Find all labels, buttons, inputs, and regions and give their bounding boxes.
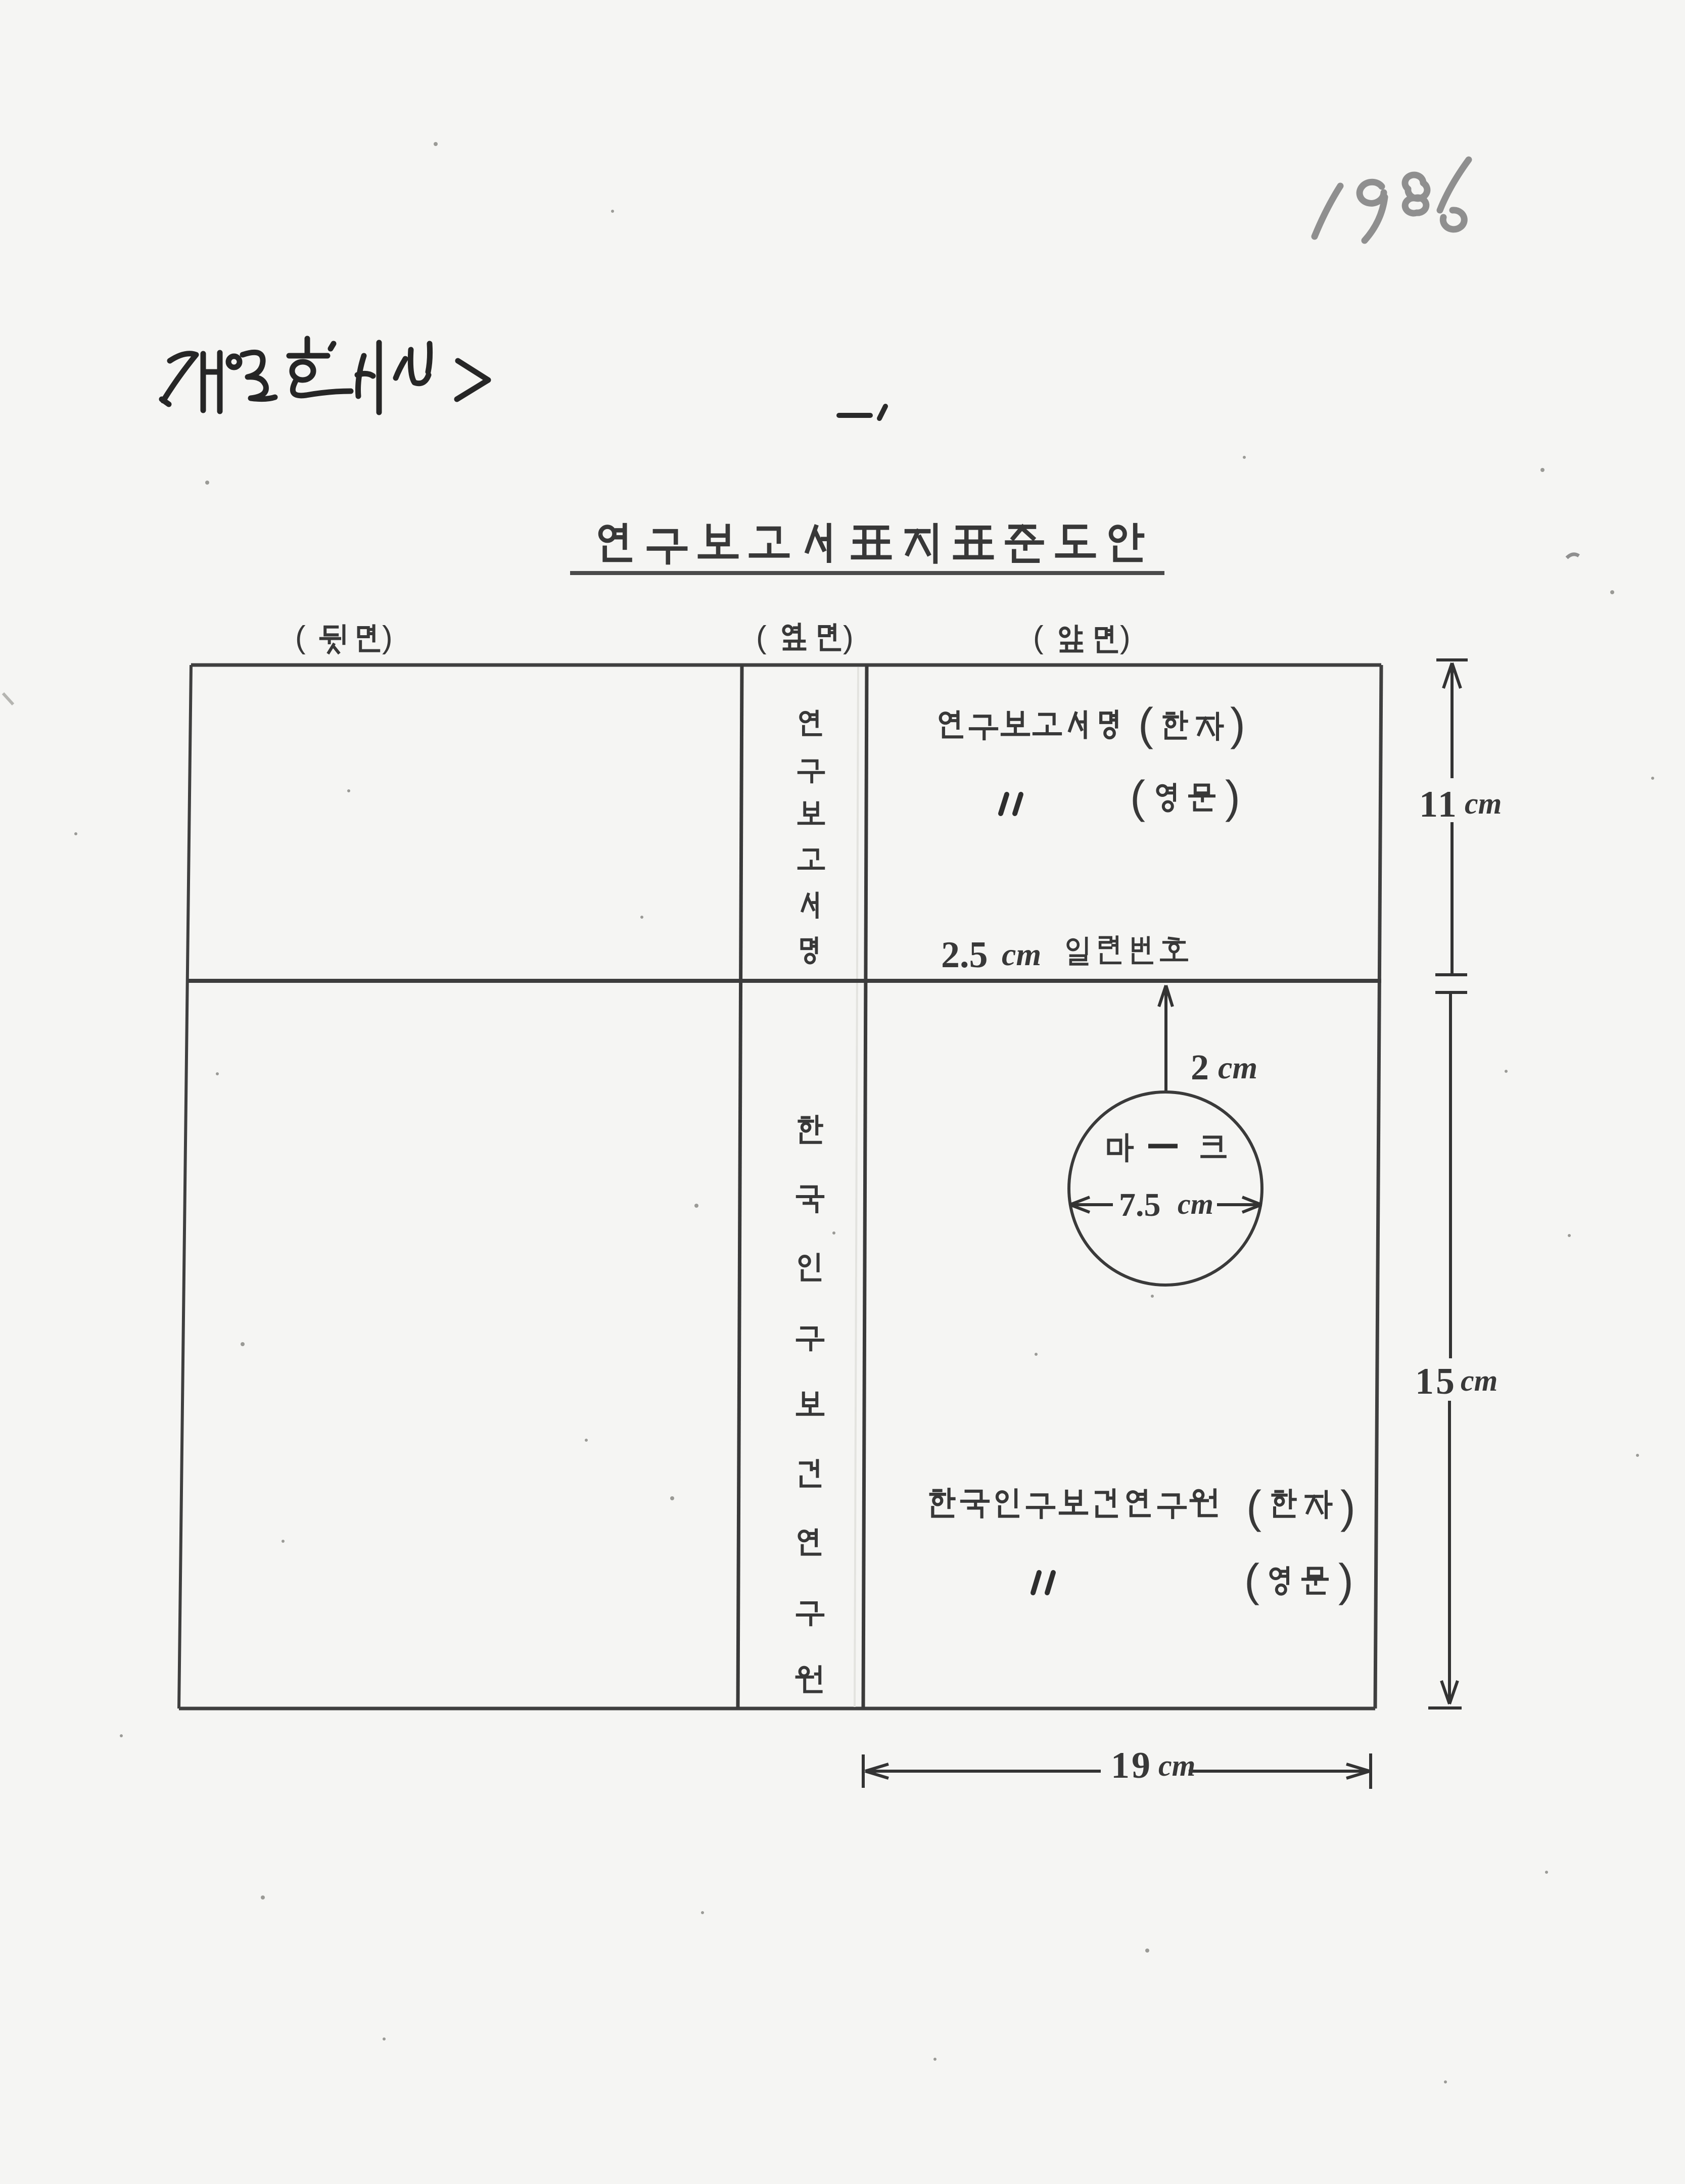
svg-text:11: 11 [1419,784,1459,825]
svg-text:(: ( [1244,1555,1259,1606]
svg-text:(: ( [756,620,767,655]
svg-text:): ) [1120,620,1131,655]
svg-text:cm: cm [1218,1050,1257,1085]
svg-text:(: ( [1130,772,1145,823]
svg-text:2: 2 [1191,1047,1209,1087]
svg-text:cm: cm [1158,1749,1195,1782]
svg-text:): ) [843,620,854,655]
svg-text:cm: cm [1465,787,1502,820]
svg-text:cm: cm [1461,1364,1497,1397]
svg-text:): ) [382,620,393,655]
svg-text:): ) [1340,1482,1355,1533]
svg-text:(: ( [1138,699,1153,750]
svg-text:): ) [1338,1555,1353,1606]
svg-text:cm: cm [1002,936,1041,972]
svg-text:(: ( [295,620,306,655]
svg-text:(: ( [1246,1482,1261,1533]
svg-text:cm: cm [1178,1188,1213,1220]
svg-text:2.5: 2.5 [941,934,988,976]
svg-text:15: 15 [1415,1361,1457,1402]
svg-text:): ) [1225,772,1240,823]
svg-text:7.5: 7.5 [1119,1186,1161,1223]
svg-text:(: ( [1033,620,1044,655]
svg-text:): ) [1230,699,1245,750]
svg-text:19: 19 [1111,1745,1152,1786]
